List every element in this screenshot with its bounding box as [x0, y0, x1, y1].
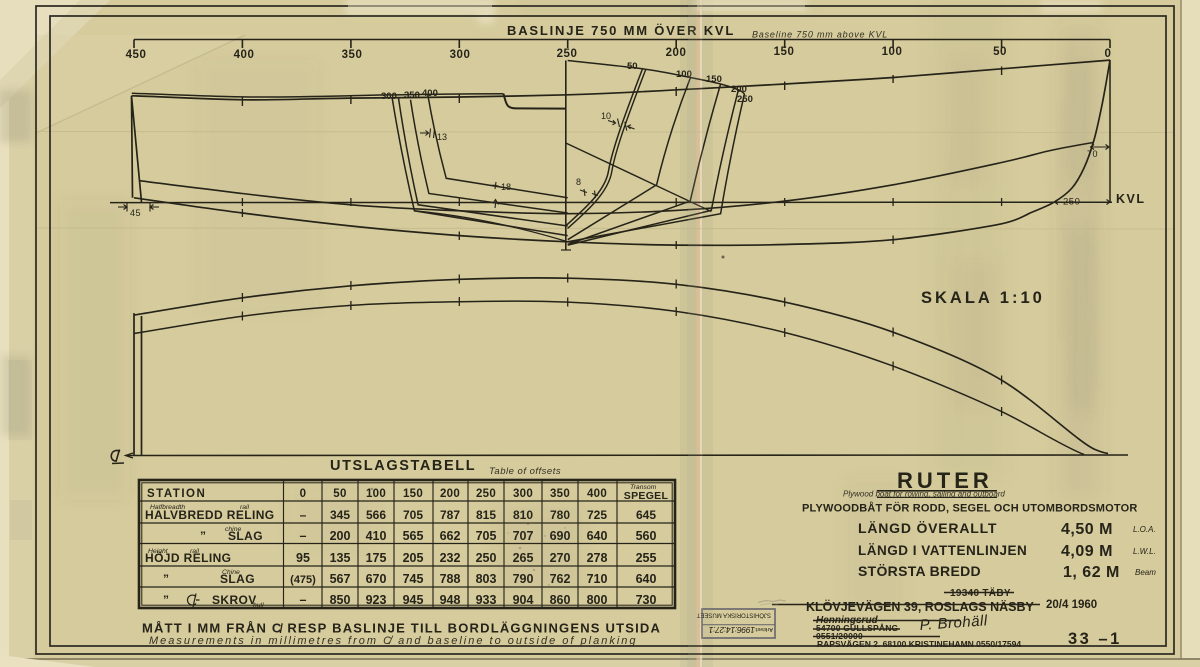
svg-text:640: 640: [587, 529, 608, 543]
svg-text:Measurements in millimetres fr: Measurements in millimetres from C̸ and …: [149, 635, 638, 647]
svg-text:10: 10: [601, 111, 611, 121]
svg-text:200: 200: [330, 529, 351, 543]
svg-text:135: 135: [330, 551, 351, 565]
svg-text:560: 560: [636, 529, 657, 543]
svg-text:640: 640: [636, 572, 657, 586]
svg-text:150: 150: [706, 74, 722, 85]
svg-text:350: 350: [550, 488, 570, 500]
svg-text:850: 850: [330, 593, 351, 607]
svg-text:945: 945: [403, 593, 424, 607]
svg-text:300: 300: [513, 488, 533, 500]
svg-text:18: 18: [501, 182, 511, 192]
svg-text:chine: chine: [225, 526, 241, 533]
svg-text:rail: rail: [240, 504, 250, 511]
svg-text:–: –: [300, 508, 307, 522]
svg-text:1996:14:27:1: 1996:14:27:1: [708, 625, 755, 635]
svg-text:Plywood boat for rowing, saili: Plywood boat for rowing, sailing and out…: [843, 490, 1005, 499]
svg-text:50: 50: [627, 61, 638, 72]
svg-text:Chine: Chine: [222, 569, 240, 576]
svg-text:860: 860: [550, 593, 571, 607]
svg-text:815: 815: [476, 508, 496, 522]
svg-text:20/4 1960: 20/4 1960: [1046, 599, 1097, 611]
svg-text:175: 175: [366, 551, 387, 565]
svg-text:705: 705: [403, 508, 423, 522]
svg-text:50: 50: [993, 46, 1007, 58]
svg-text:STÖRSTA BREDD: STÖRSTA BREDD: [858, 563, 981, 579]
svg-text:205: 205: [403, 551, 424, 565]
svg-text:400: 400: [422, 88, 438, 99]
svg-text:350: 350: [404, 90, 420, 101]
svg-text:800: 800: [587, 593, 608, 607]
svg-text:933: 933: [476, 593, 497, 607]
svg-text:350: 350: [342, 49, 363, 61]
svg-text:SPEGEL: SPEGEL: [624, 490, 669, 502]
svg-text:948: 948: [440, 593, 461, 607]
svg-text:300: 300: [450, 49, 471, 61]
svg-text:50: 50: [333, 488, 346, 500]
svg-text:410: 410: [366, 529, 387, 543]
svg-text:45: 45: [130, 208, 141, 218]
svg-text:788: 788: [440, 572, 461, 586]
svg-text:rail: rail: [190, 548, 200, 555]
svg-text:SJÖHISTORISKA MUSEET: SJÖHISTORISKA MUSEET: [696, 612, 771, 619]
svg-text:8: 8: [576, 177, 581, 187]
svg-text:705: 705: [476, 529, 497, 543]
svg-text:STATION: STATION: [147, 488, 206, 500]
svg-text:710: 710: [587, 572, 608, 586]
svg-text:662: 662: [440, 529, 461, 543]
svg-text:645: 645: [636, 508, 656, 522]
svg-text:–: –: [300, 529, 307, 543]
svg-text:UTSLAGSTABELL: UTSLAGSTABELL: [330, 458, 476, 474]
svg-text:100: 100: [366, 488, 386, 500]
svg-text:hull: hull: [253, 602, 264, 609]
svg-text:730: 730: [636, 593, 657, 607]
svg-text:787: 787: [440, 508, 460, 522]
svg-text:SKROV: SKROV: [212, 593, 257, 607]
svg-text:566: 566: [366, 508, 386, 522]
svg-text:MÅTT I MM FRÅN C̸ RESP BASLIN: MÅTT I MM FRÅN C̸ RESP BASLINJE TILL BOR…: [142, 621, 661, 636]
svg-text:95: 95: [296, 551, 310, 565]
svg-text:0: 0: [1105, 48, 1112, 60]
svg-text:L.W.L.: L.W.L.: [1133, 547, 1156, 556]
svg-text:200: 200: [440, 488, 460, 500]
svg-text:LÄNGD I VATTENLINJEN: LÄNGD I VATTENLINJEN: [858, 543, 1027, 558]
svg-text:745: 745: [403, 572, 424, 586]
svg-text:–: –: [300, 593, 307, 607]
svg-text:33 –1: 33 –1: [1068, 630, 1122, 648]
svg-text:250: 250: [737, 94, 753, 105]
svg-text:L.O.A.: L.O.A.: [1133, 525, 1156, 534]
svg-text:670: 670: [366, 572, 387, 586]
svg-text:567: 567: [330, 572, 351, 586]
svg-text:400: 400: [234, 49, 255, 61]
svg-text:”: ”: [163, 593, 169, 607]
svg-text:Halfbreadth: Halfbreadth: [150, 504, 185, 511]
svg-text:904: 904: [513, 593, 534, 607]
svg-text:345: 345: [330, 508, 350, 522]
svg-text:4,50 M: 4,50 M: [1061, 521, 1113, 538]
svg-text:LÄNGD ÖVERALLT: LÄNGD ÖVERALLT: [858, 520, 997, 536]
svg-text:KVL: KVL: [1116, 192, 1146, 206]
svg-text:(475): (475): [290, 574, 316, 586]
svg-text:300: 300: [381, 91, 397, 102]
svg-text:1, 62 M: 1, 62 M: [1063, 564, 1120, 581]
svg-text:803: 803: [476, 572, 497, 586]
svg-text:565: 565: [403, 529, 424, 543]
svg-text:4,09 M: 4,09 M: [1061, 543, 1113, 560]
svg-text:”: ”: [200, 529, 206, 543]
svg-text:Table of offsets: Table of offsets: [489, 466, 561, 477]
svg-text:0: 0: [300, 488, 307, 500]
svg-text:100: 100: [882, 46, 903, 58]
svg-text:400: 400: [587, 488, 607, 500]
svg-text:250: 250: [1063, 197, 1080, 208]
svg-text:Beam: Beam: [1135, 568, 1156, 577]
svg-text:Arkivet:: Arkivet:: [754, 626, 773, 632]
svg-text:150: 150: [403, 488, 423, 500]
svg-text:Baseline 750 mm above KVL: Baseline 750 mm above KVL: [752, 30, 888, 40]
svg-text:278: 278: [587, 551, 608, 565]
svg-text:255: 255: [636, 551, 657, 565]
svg-text:”: ”: [163, 572, 169, 586]
svg-text:RAPSVÄGEN 2. 68100 KRISTINEHAM: RAPSVÄGEN 2. 68100 KRISTINEHAMN 0550/175…: [817, 639, 1021, 649]
svg-text:250: 250: [476, 551, 497, 565]
svg-text:KLÖVJEVÄGEN 39, ROSLAGS NÄSBY: KLÖVJEVÄGEN 39, ROSLAGS NÄSBY: [806, 599, 1034, 614]
svg-text:923: 923: [366, 593, 387, 607]
svg-text:232: 232: [440, 551, 461, 565]
svg-text:250: 250: [557, 48, 578, 60]
svg-text:250: 250: [476, 488, 496, 500]
svg-text:PLYWOODBÅT FÖR RODD, SEGEL OCH: PLYWOODBÅT FÖR RODD, SEGEL OCH UTOMBORDS…: [802, 502, 1138, 515]
svg-text:150: 150: [774, 46, 795, 58]
svg-text:13: 13: [437, 132, 447, 142]
svg-text:200: 200: [666, 47, 687, 59]
svg-text:725: 725: [587, 508, 607, 522]
svg-text:Transom: Transom: [630, 484, 657, 491]
svg-text:450: 450: [126, 49, 147, 61]
svg-text:Height: Height: [148, 548, 169, 555]
svg-text:70: 70: [1087, 149, 1098, 159]
